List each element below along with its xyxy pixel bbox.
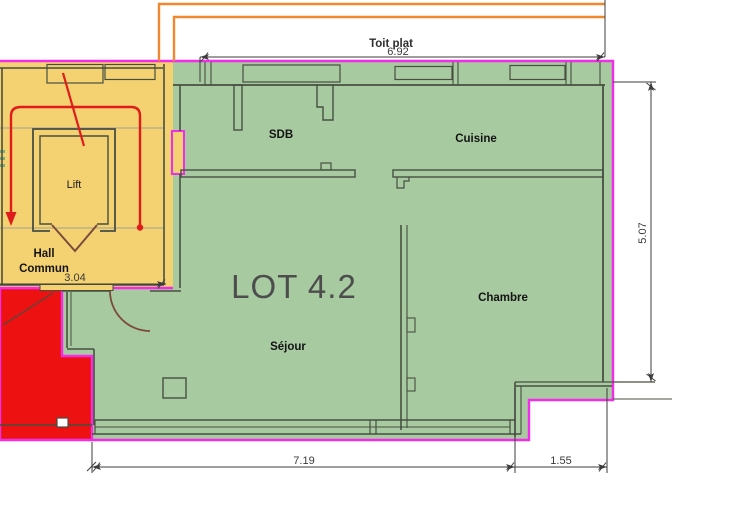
escape-route-start-dot: [137, 224, 143, 230]
room-label-chambre: Chambre: [478, 292, 528, 304]
lot-title: LOT 4.2: [231, 268, 357, 305]
hall-commun-area: [0, 61, 173, 288]
room-label-hall-line2: Commun: [19, 263, 69, 275]
dim-bottom-right: 1.55: [550, 455, 571, 467]
room-label-sejour: Séjour: [270, 341, 306, 353]
red-zone-notch: [57, 418, 68, 427]
dim-bottom-main: 7.19: [293, 455, 314, 467]
room-label-sdb: SDB: [269, 129, 293, 141]
party-wall-niche: [172, 131, 184, 174]
floor-plan-canvas: Toit plat 6.92 5.07 3.04 7.19 1.55 LOT 4…: [0, 0, 736, 510]
room-label-hall-line1: Hall: [33, 248, 54, 260]
roof-outline-outer: [159, 4, 605, 61]
roof-outline: [159, 4, 605, 61]
room-label-lift: Lift: [67, 179, 82, 191]
room-label-cuisine: Cuisine: [455, 133, 497, 145]
hall-door-threshold: [40, 285, 113, 291]
floor-plan-page: Toit plat 6.92 5.07 3.04 7.19 1.55 LOT 4…: [0, 0, 736, 510]
dim-right-height: 5.07: [637, 222, 649, 243]
dim-roof-width: 6.92: [387, 46, 408, 58]
